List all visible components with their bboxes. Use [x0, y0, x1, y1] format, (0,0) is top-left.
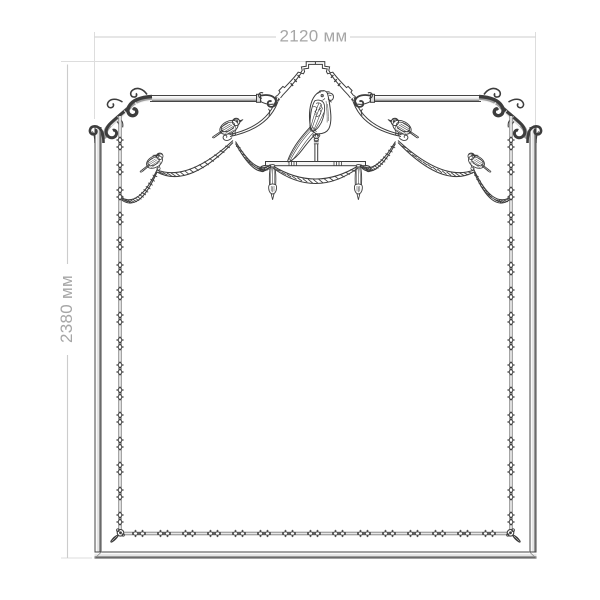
- svg-text:2120 мм: 2120 мм: [279, 27, 347, 46]
- svg-text:2380 мм: 2380 мм: [57, 275, 76, 343]
